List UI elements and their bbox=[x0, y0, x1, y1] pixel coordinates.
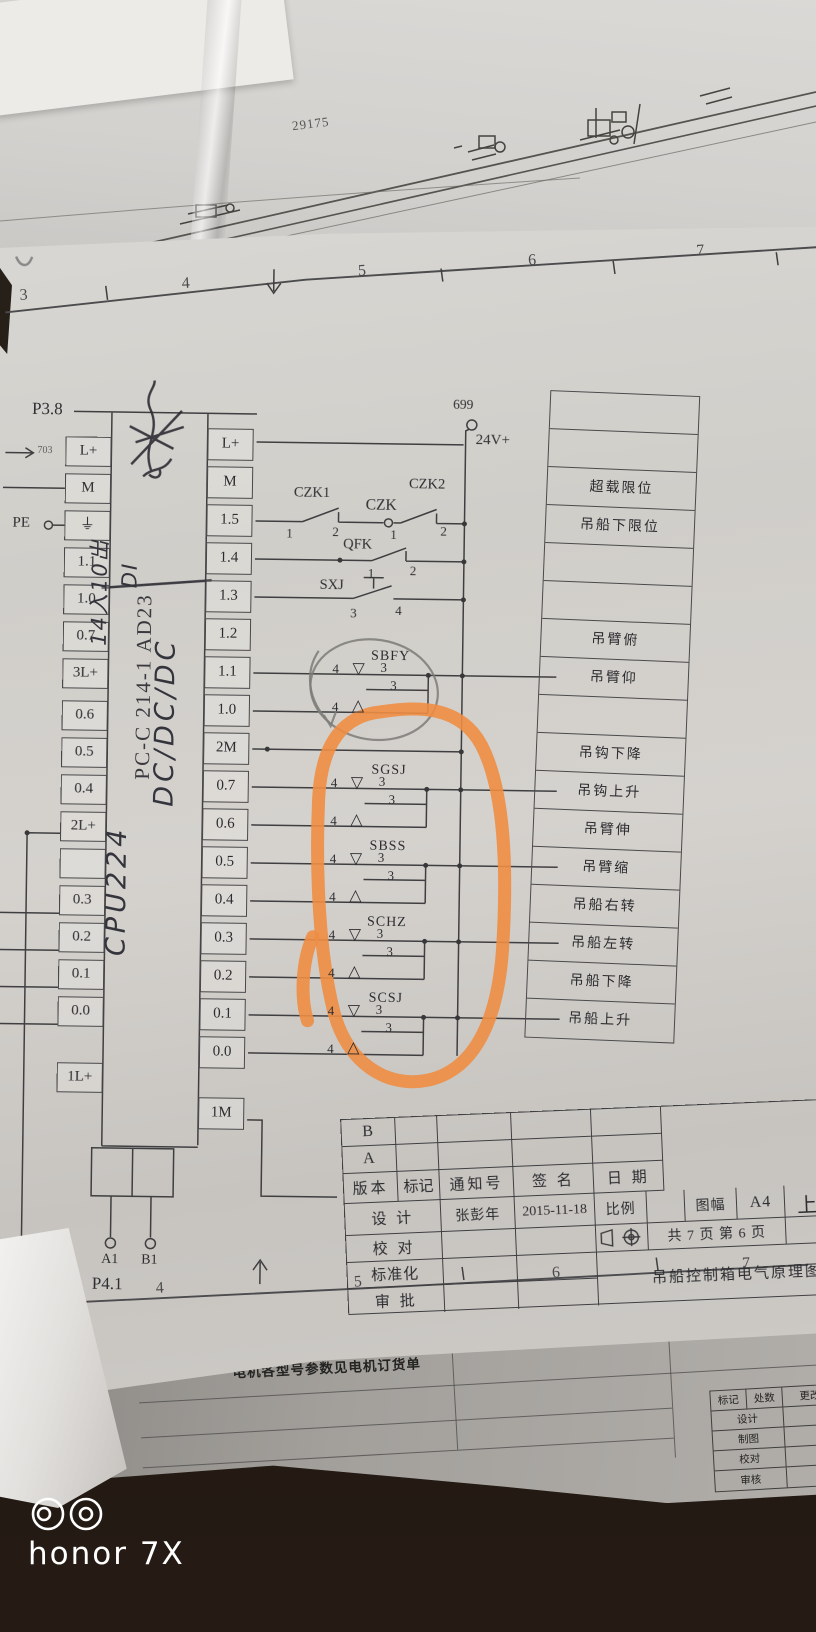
grid-number: 4 bbox=[155, 1279, 164, 1297]
io-function-row: 吊船上升 bbox=[525, 999, 674, 1043]
terminal-cell: 1.0 bbox=[204, 694, 250, 727]
contact-number: 2 bbox=[410, 563, 417, 579]
pe-label: PE bbox=[12, 515, 30, 532]
io-function-row: 吊钩下降 bbox=[536, 733, 685, 777]
empty-cell bbox=[442, 1229, 517, 1259]
coil-terminal-b1: B1 bbox=[141, 1252, 158, 1268]
grid-number: 6 bbox=[528, 252, 537, 270]
contact-number: 1 bbox=[368, 566, 375, 582]
terminal-cell: 1L+ bbox=[56, 1062, 102, 1093]
grid-number: 7 bbox=[696, 242, 705, 260]
pencil-arrow bbox=[309, 651, 336, 726]
switch-sxj-label: SXJ bbox=[319, 577, 343, 594]
terminal-cell: 0.1 bbox=[199, 998, 245, 1031]
terminal-cell: 1M bbox=[198, 1097, 244, 1130]
switch-czk-label: CZK bbox=[366, 497, 397, 515]
empty-cell bbox=[444, 1282, 519, 1312]
date-header: 日 期 bbox=[593, 1161, 664, 1194]
design-date: 2015-11-18 bbox=[515, 1194, 596, 1229]
contact-number: 2 bbox=[440, 524, 447, 540]
io-function-table: 超载限位吊船下限位吊臂俯吊臂仰吊钩下降吊钩上升吊臂伸吊臂缩吊船右转吊船左转吊船下… bbox=[524, 390, 700, 1043]
empty-cell bbox=[396, 1143, 439, 1172]
empty-cell bbox=[443, 1256, 518, 1285]
empty-cell bbox=[591, 1107, 662, 1137]
empty-cell bbox=[438, 1140, 513, 1170]
terminal-cell: 0.0 bbox=[57, 996, 103, 1027]
terminal-cell: 1.3 bbox=[205, 580, 251, 613]
terminal-cell: 0.3 bbox=[200, 922, 246, 955]
rev-b: B bbox=[341, 1118, 396, 1147]
terminal-cell: 0.1 bbox=[58, 959, 104, 990]
check-label: 校 对 bbox=[346, 1232, 443, 1263]
terminal-cell: 1.4 bbox=[206, 542, 252, 575]
terminal-cell: 2M bbox=[203, 732, 249, 765]
wire-number: 699 bbox=[453, 397, 473, 413]
designer-name: 张彭年 bbox=[441, 1197, 516, 1232]
io-function-row bbox=[550, 391, 699, 435]
empty-cell bbox=[516, 1226, 597, 1256]
terminal-cell: 0.4 bbox=[201, 884, 247, 917]
net-number: 703 bbox=[37, 445, 52, 456]
photo-of-schematic: 电机各型号参数见电机订货单 标记 处数 更改文件号 设计 制图 校对 审核 bbox=[0, 0, 816, 1632]
signature-header: 签 名 bbox=[513, 1164, 594, 1197]
grid-number: 3 bbox=[19, 286, 28, 304]
junction-dots bbox=[261, 519, 467, 1021]
plc-right-terminal-column: L+M1.51.41.31.21.11.02M0.70.60.50.40.30.… bbox=[198, 428, 254, 1136]
watermark-text: honor 7X bbox=[28, 1536, 185, 1572]
mark-header: 标记 bbox=[397, 1170, 440, 1202]
terminal-cell: 0.5 bbox=[201, 846, 247, 879]
io-function-row: 吊臂仰 bbox=[539, 657, 688, 701]
contact-number: 2 bbox=[332, 524, 339, 540]
io-function-row: 吊船下限位 bbox=[545, 505, 694, 549]
plc-model-label: PC-C 214-1 AD23 bbox=[129, 521, 168, 851]
schematic-content: 34567 4567 P3.8 703 699 24V+ PE P4.1 A1 … bbox=[0, 0, 816, 1632]
rev-a: A bbox=[342, 1145, 397, 1174]
scale-label: 比例 bbox=[594, 1191, 647, 1225]
empty-cell bbox=[518, 1279, 599, 1309]
first-angle-projection-icon bbox=[598, 1228, 645, 1248]
grid-number: 4 bbox=[181, 275, 190, 293]
notice-header: 通知号 bbox=[439, 1167, 514, 1200]
io-function-row: 吊钩上升 bbox=[535, 771, 684, 815]
camera-watermark: honor 7X bbox=[26, 1490, 286, 1600]
projection-symbol-cell bbox=[596, 1223, 649, 1252]
empty-cell bbox=[395, 1116, 438, 1145]
terminal-cell: 1.2 bbox=[205, 618, 251, 651]
orange-marker-circle bbox=[314, 708, 507, 1083]
contact-number: 1 bbox=[286, 525, 293, 541]
io-function-row: 吊船下降 bbox=[527, 961, 676, 1005]
dual-lens-icon bbox=[26, 1490, 116, 1534]
switch-czk1-label: CZK1 bbox=[294, 484, 330, 502]
switch-czk2-label: CZK2 bbox=[409, 476, 445, 494]
empty-cell bbox=[511, 1110, 592, 1140]
terminal-cell: 0.0 bbox=[199, 1036, 245, 1069]
contact-number: 1 bbox=[390, 527, 397, 543]
terminal-cell: 0.6 bbox=[202, 808, 248, 841]
approval-label: 审 批 bbox=[348, 1285, 445, 1316]
coil-terminal-a1: A1 bbox=[101, 1252, 118, 1268]
io-function-row bbox=[544, 543, 693, 587]
size-value: A4 bbox=[736, 1186, 785, 1220]
contact-number: 3 bbox=[350, 605, 357, 621]
io-function-row: 吊船左转 bbox=[528, 923, 677, 967]
switch-qfk-label: QFK bbox=[343, 536, 372, 553]
size-label: 图幅 bbox=[684, 1188, 737, 1222]
io-function-row bbox=[538, 695, 687, 739]
io-function-row: 超载限位 bbox=[547, 467, 696, 511]
standardization-label: 标准化 bbox=[347, 1259, 444, 1289]
io-function-row bbox=[542, 581, 691, 625]
empty-cell bbox=[517, 1253, 598, 1282]
terminal-cell: 0.2 bbox=[200, 960, 246, 993]
io-count-text: 14入10出 bbox=[87, 538, 112, 646]
terminal-cell: L+ bbox=[65, 436, 111, 467]
contact-number: 4 bbox=[395, 603, 402, 619]
terminal-cell: L+ bbox=[207, 428, 253, 461]
scale-value bbox=[646, 1190, 685, 1224]
supply-label: 24V+ bbox=[476, 432, 511, 449]
sheet-ref-prev: P3.8 bbox=[32, 399, 63, 419]
terminal-cell: 1.5 bbox=[206, 504, 252, 537]
orange-marker-stroke bbox=[303, 937, 313, 1021]
terminal-cell: M bbox=[207, 466, 253, 499]
empty-cell bbox=[592, 1134, 663, 1164]
sheet-ref-next: P4.1 bbox=[92, 1274, 123, 1294]
clipped-edge-character: 上 bbox=[796, 1188, 816, 1218]
empty-cell bbox=[437, 1113, 512, 1143]
io-function-row: 吊船右转 bbox=[530, 885, 679, 929]
terminal-cell: 1.1 bbox=[204, 656, 250, 689]
grid-number: 5 bbox=[357, 262, 366, 280]
io-function-row bbox=[548, 429, 697, 473]
design-label: 设 计 bbox=[345, 1200, 442, 1236]
io-function-row: 吊臂缩 bbox=[531, 847, 680, 891]
io-function-row: 吊臂伸 bbox=[533, 809, 682, 853]
terminal-cell: 0.7 bbox=[203, 770, 249, 803]
version-header: 版本 bbox=[343, 1172, 398, 1204]
title-block: B A 版本 标记 通知号 签 名 日 期 设 计 张彭年 2015-11-18… bbox=[340, 1095, 816, 1315]
io-function-row: 吊臂俯 bbox=[541, 619, 690, 663]
empty-cell bbox=[512, 1137, 593, 1167]
